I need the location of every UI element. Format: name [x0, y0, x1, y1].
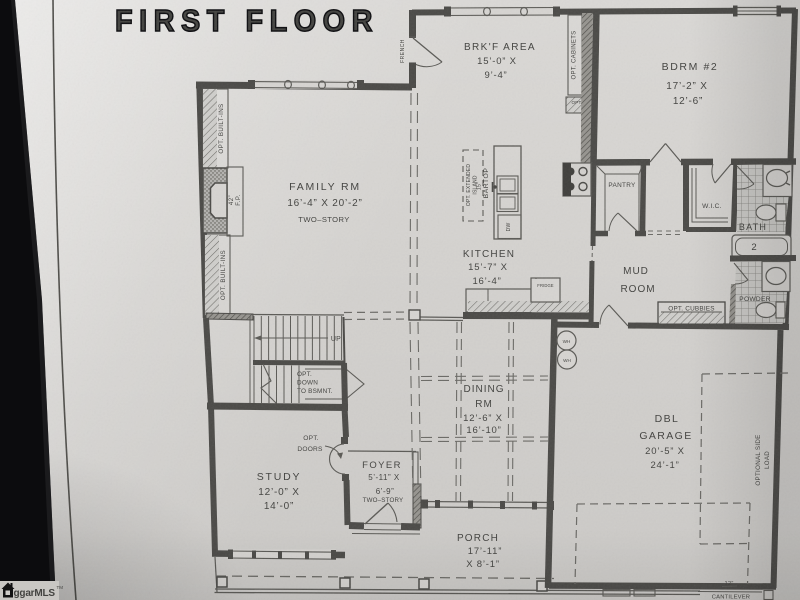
svg-text:ggarMLS: ggarMLS [14, 588, 56, 599]
svg-text:TM: TM [57, 585, 64, 590]
